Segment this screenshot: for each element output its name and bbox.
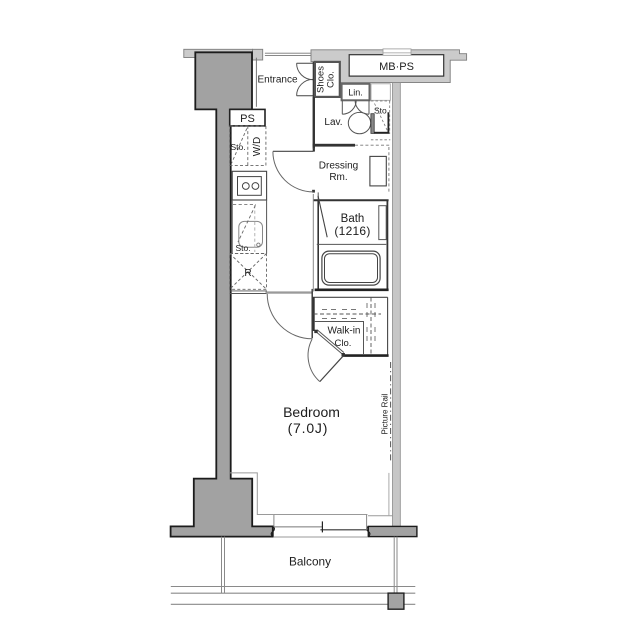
svg-text:(1216): (1216) [334, 224, 370, 238]
svg-text:Sto.: Sto. [374, 106, 389, 116]
svg-text:Lin.: Lin. [348, 87, 363, 97]
svg-text:(7.0J): (7.0J) [288, 420, 329, 436]
svg-text:Bedroom: Bedroom [283, 404, 340, 420]
svg-text:Balcony: Balcony [289, 554, 331, 568]
svg-text:Lav.: Lav. [324, 117, 342, 128]
svg-text:W/D: W/D [252, 137, 263, 156]
svg-text:PS: PS [240, 113, 255, 125]
svg-text:Walk-in: Walk-in [328, 326, 361, 337]
svg-text:Sto.: Sto. [230, 142, 245, 152]
svg-text:Sto.: Sto. [235, 243, 250, 253]
svg-text:MB·PS: MB·PS [379, 61, 414, 73]
svg-text:Entrance: Entrance [257, 75, 297, 86]
svg-text:Picture Rail: Picture Rail [380, 393, 389, 434]
svg-text:Dressing: Dressing [319, 160, 358, 171]
svg-text:Rm.: Rm. [329, 172, 347, 183]
svg-text:Clo.: Clo. [326, 71, 337, 88]
svg-text:R: R [244, 268, 251, 279]
